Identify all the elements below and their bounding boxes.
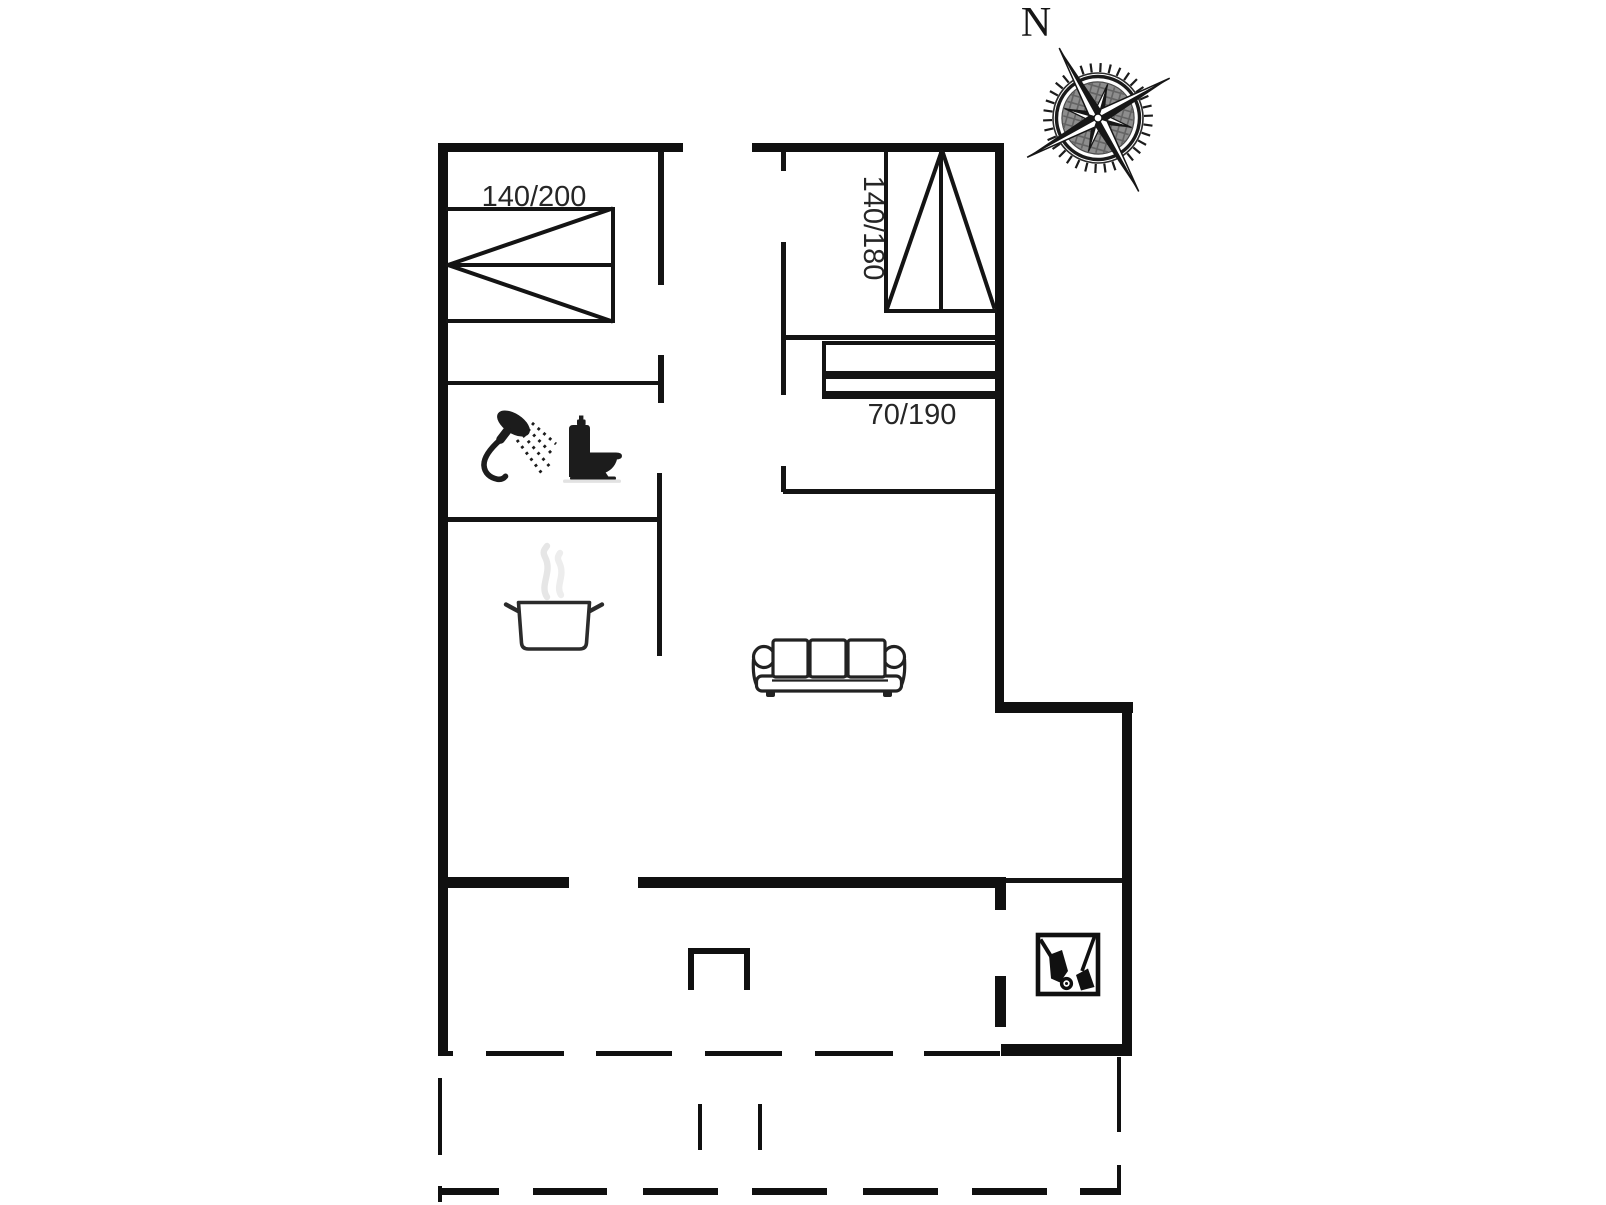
svg-text:N: N — [1021, 0, 1051, 46]
svg-text:140/200: 140/200 — [482, 181, 587, 213]
svg-text:70/190: 70/190 — [868, 399, 957, 431]
svg-text:140/180: 140/180 — [857, 176, 889, 281]
